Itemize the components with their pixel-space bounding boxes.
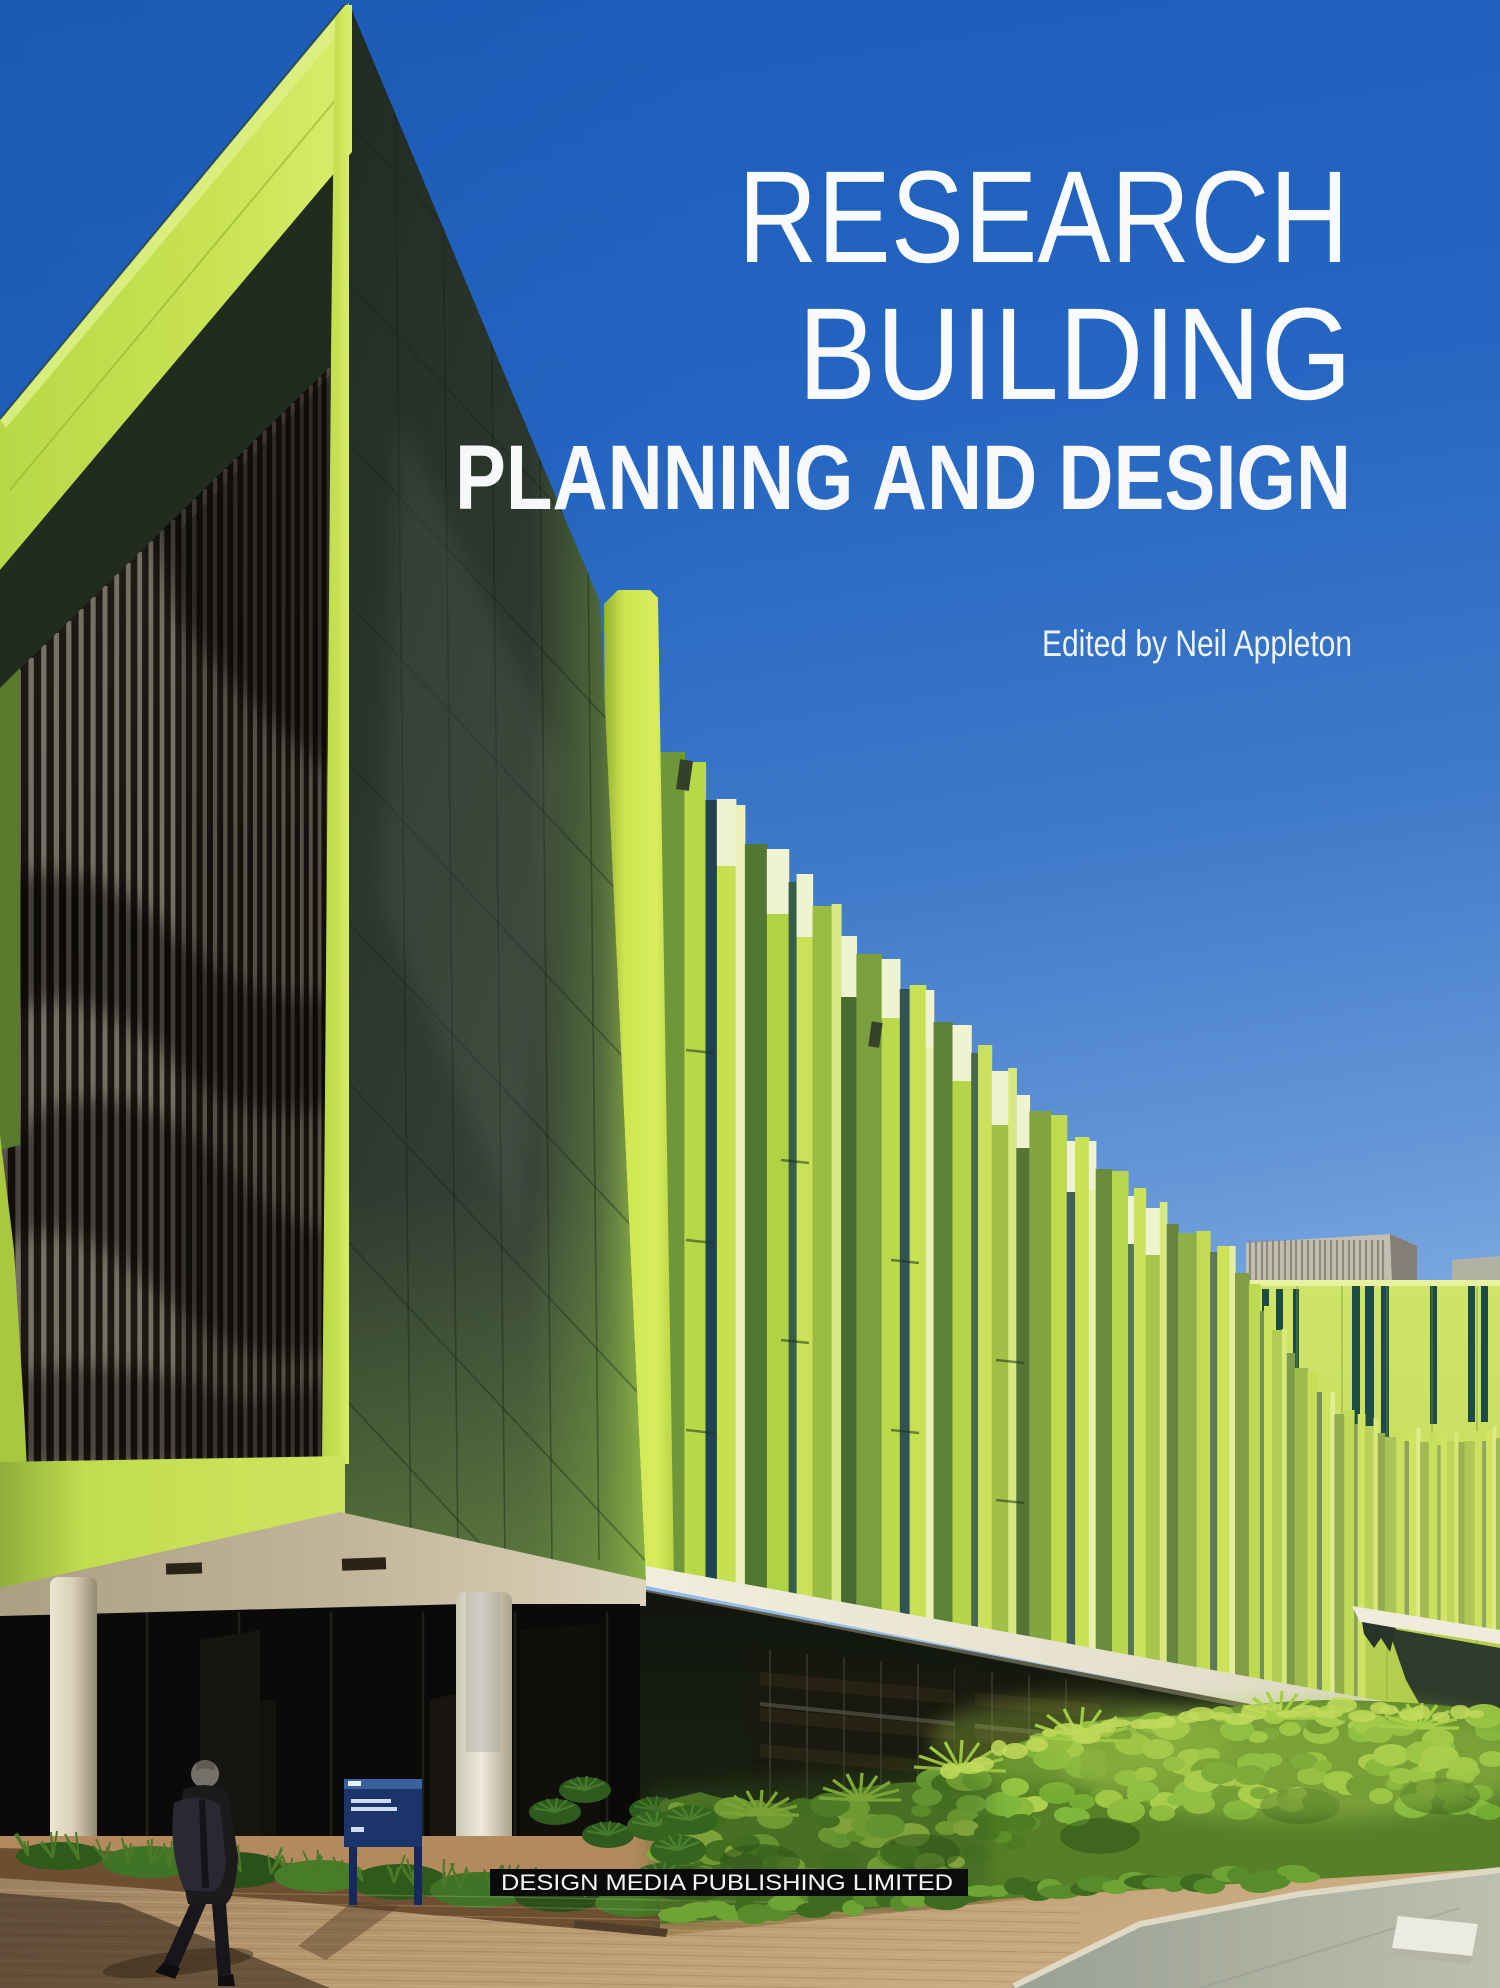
svg-text:Edited by Neil Appleton: Edited by Neil Appleton	[1042, 623, 1352, 664]
svg-text:RESEARCH: RESEARCH	[738, 143, 1349, 290]
svg-text:DESIGN MEDIA PUBLISHING LIMITE: DESIGN MEDIA PUBLISHING LIMITED	[501, 1870, 953, 1895]
svg-text:BUILDING: BUILDING	[798, 280, 1352, 427]
svg-text:PLANNING AND DESIGN: PLANNING AND DESIGN	[455, 427, 1351, 529]
